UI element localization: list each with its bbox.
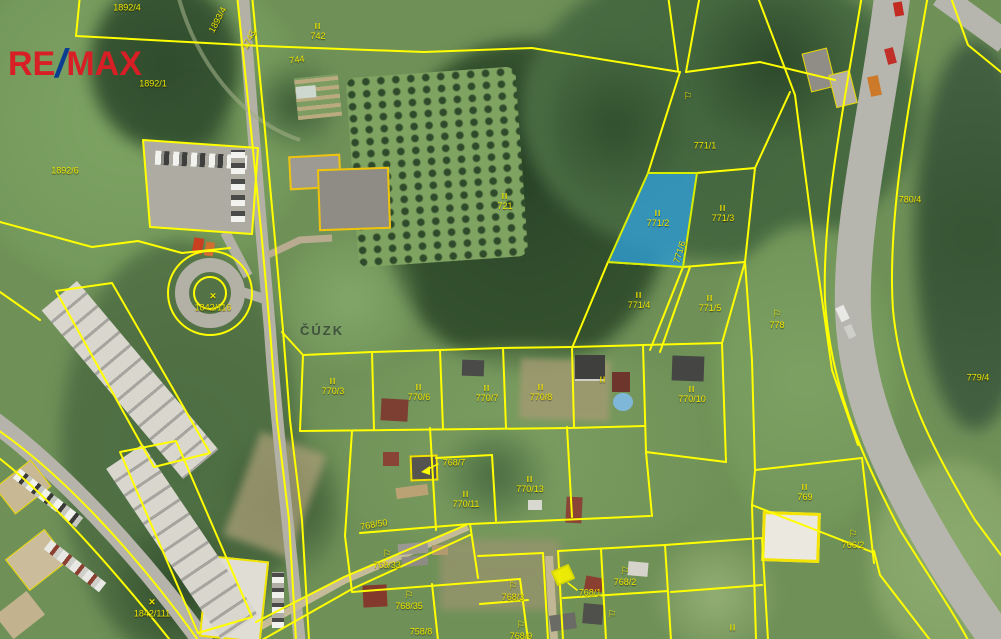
parcel-line [432,584,438,639]
parcel-number: 771/1 [694,141,717,151]
land-use-mark-icon: II [712,205,735,213]
parcel-line [470,524,478,578]
land-use-mark-icon: II [408,384,431,392]
parcel-line [745,168,755,262]
parcel-label: II771/3 [712,205,735,223]
parcel-line [572,347,574,427]
parcel-number: 771/2 [647,218,670,228]
parcel-label: ⚐768/3 [502,582,525,602]
parcel-line [697,168,755,173]
parcel-symbol: ⚐ [684,93,693,104]
parcel-line [650,267,683,350]
parcel-number: 770/8 [530,392,553,402]
garden-flag-icon: ⚐ [842,530,865,540]
parcel-label: II721 [497,193,512,211]
garden-flag-icon: ⚐ [608,611,617,621]
tree-mark-icon: × [195,292,232,303]
parcel-line [762,538,768,639]
parcel-line [352,579,520,592]
garden-flag-icon: ⚐ [614,567,637,577]
parcel-number: 721 [497,201,512,211]
parcel-number: 779/4 [967,373,990,383]
parcel-line [671,585,762,592]
parcel-number: 744 [289,54,305,66]
parcel-label: II769 [797,484,812,502]
parcel-label: 779/4 [967,374,990,383]
parcel-number: 769 [797,492,812,502]
remax-logo-slash: / [55,42,66,86]
tree-mark-icon: × [134,598,170,609]
land-use-mark-icon: II [699,295,722,303]
parcel-number: 758/8 [410,627,433,637]
parcel-line [372,352,374,430]
parcel-line [646,452,652,516]
parcel-line [660,267,690,352]
parcel-label: II770/3 [322,378,345,396]
parcel-line [345,431,352,592]
parcel-label: II771/5 [699,295,722,313]
parcel-number: 768/3 [502,592,525,602]
parcel-line [440,350,443,429]
parcel-line [252,0,309,639]
parcel-number: 771/3 [712,213,735,223]
parcel-line [76,0,80,36]
garden-flag-icon: ⚐ [684,93,693,103]
parcel-number: 770/6 [408,392,431,402]
parcel-line [76,36,532,52]
parcel-line [492,455,496,521]
cadastral-map[interactable]: 1892/41893/41743II7427441892/11892/6II72… [0,0,1001,639]
parcel-line [558,551,563,639]
parcel-number: 771/5 [699,303,722,313]
reference-arrow-head [421,466,430,475]
land-use-mark-icon: II [797,484,812,492]
garden-flag-icon: ⚐ [769,310,784,320]
parcel-line [360,516,650,533]
parcel-number: 1892/4 [113,3,141,13]
parcel-label: II770/11 [453,491,480,509]
parcel-line [567,427,572,517]
parcel-line [686,62,835,80]
parcel-label: 1892/6 [51,167,79,176]
parcel-line [722,343,726,462]
parcel-label: 768/7 [443,459,466,468]
parcel-label: ⚐766/2 [842,530,865,550]
parcel-label: ×1842/116 [195,292,232,313]
parcel-number: 780/4 [899,195,922,205]
parcel-line [543,553,548,639]
land-use-mark-icon: II [530,384,553,392]
parcel-number: 768/35 [395,601,423,611]
remax-logo: RE/MAX [8,42,142,82]
parcel-line [430,428,436,530]
land-use-mark-icon: II [310,23,325,31]
parcel-line [722,262,745,343]
parcel-number: 771/4 [628,300,651,310]
parcel-line [143,140,258,234]
parcel-line [0,222,230,253]
parcel-symbol: II [600,377,606,386]
garden-flag-icon: ⚐ [395,591,423,601]
parcel-number: 770/13 [516,484,544,494]
parcel-label: ⚐778 [769,310,784,330]
parcel-label: 758/8 [410,628,433,637]
parcel-number: 768/33 [373,560,401,570]
parcel-symbol: ⚐ [608,611,617,622]
parcel-label: II771/4 [628,292,651,310]
parcel-number: 768/9 [510,631,533,639]
parcel-label: 780/4 [899,196,922,205]
parcel-label: II770/13 [516,476,544,494]
parcel-label: II770/7 [476,385,499,403]
parcel-number: 768/7 [443,458,466,468]
parcel-label: 768/1 [579,589,602,598]
parcel-label: 1892/4 [113,4,141,13]
parcel-label: II742 [310,23,325,41]
parcel-line [300,355,303,431]
parcel-label: ⚐768/35 [395,591,423,611]
parcel-line [665,538,762,545]
parcel-line [686,0,700,72]
highlighted-building [552,565,574,585]
parcel-line [478,553,543,556]
parcel-line [745,262,755,470]
parcel-label: II770/10 [678,386,706,404]
land-use-mark-icon: II [678,386,706,394]
land-use-mark-icon: II [516,476,544,484]
parcel-line [668,0,678,70]
parcel-number: 770/11 [453,499,480,509]
parcel-number: 768/1 [579,588,602,598]
parcel-label: ⚐768/2 [614,567,637,587]
parcel-number: 1842/111 [134,609,170,619]
parcel-line [303,343,722,355]
land-use-mark-icon: II [497,193,512,201]
parcel-line [237,0,296,639]
parcel-number: 770/7 [476,393,499,403]
parcel-number: 1842/116 [195,303,232,313]
parcel-line [892,0,1001,555]
parcel-number: 766/2 [842,540,865,550]
parcel-line [752,470,756,639]
parcel-number: 742 [310,31,325,41]
parcel-line [558,545,665,551]
garden-flag-icon: ⚐ [373,550,401,560]
parcel-label: 771/1 [694,142,717,151]
parcel-line [572,262,608,348]
remax-logo-re: RE [8,45,55,83]
parcel-line [648,72,680,173]
parcel-line [643,345,646,452]
land-use-mark-icon: II [730,625,736,633]
remax-logo-max: MAX [66,45,142,83]
parcel-line [646,452,726,462]
parcel-label: ⚐768/33 [373,550,401,570]
building-outline [56,283,210,467]
parcel-line [532,48,680,72]
parcel-symbol: II [730,625,736,634]
garden-flag-icon: ⚐ [502,582,525,592]
parcel-number: 768/2 [614,577,637,587]
parcel-line [755,92,790,168]
parcel-line [0,292,40,320]
land-use-mark-icon: II [322,378,345,386]
reference-arrow [568,583,577,590]
parcel-line [755,458,862,470]
parcel-line [757,0,795,95]
parcel-line [795,95,858,445]
land-use-mark-icon: II [476,385,499,393]
land-use-mark-icon: II [600,377,606,385]
parcel-line [601,549,606,639]
parcel-line [503,348,506,428]
land-use-mark-icon: II [453,491,480,499]
parcel-number: 770/10 [678,394,706,404]
parcel-label: 1892/1 [139,80,167,89]
parcel-number: 1892/6 [51,166,79,176]
cuzk-watermark: ČÚZK [300,323,344,338]
land-use-mark-icon: II [628,292,651,300]
parcel-number: 770/3 [322,386,345,396]
parcel-number: 1892/1 [139,79,167,89]
land-use-mark-icon: II [647,210,670,218]
parcel-label: II770/8 [530,384,553,402]
garden-flag-icon: ⚐ [510,621,533,631]
parcel-line [950,0,1001,72]
parcel-label: ⚐768/9 [510,621,533,639]
parcel-label: II771/2 [647,210,670,228]
parcel-label: ×1842/111 [134,598,170,619]
parcel-number: 778 [769,320,784,330]
parcel-label: II770/6 [408,384,431,402]
